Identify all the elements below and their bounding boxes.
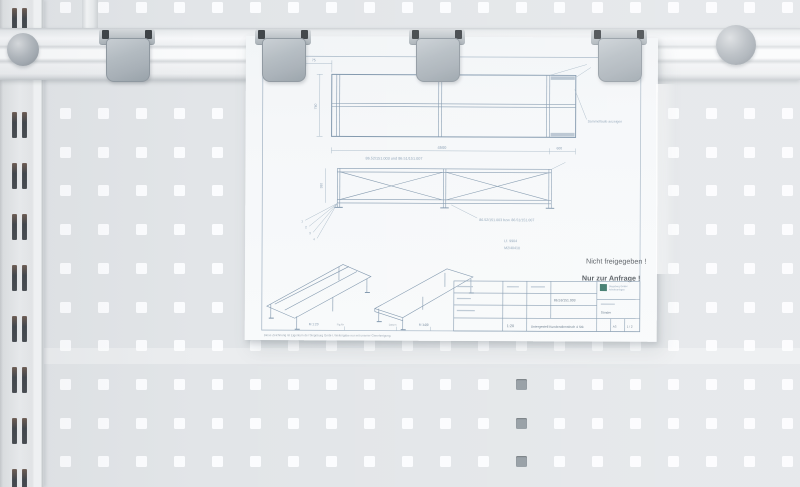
strip-label-2: Datum: [389, 323, 397, 327]
pegboard-hole: [250, 418, 261, 429]
drawing-number: 86.53/151.003: [554, 298, 576, 302]
light-seam: [0, 348, 800, 364]
pegboard-hole: [668, 379, 679, 390]
pegboard-hole: [288, 379, 299, 390]
pegboard-hole: [174, 224, 185, 235]
pegboard-hole: [782, 456, 793, 467]
pegboard-hole: [98, 185, 109, 196]
pegboard-hole: [706, 224, 717, 235]
pegboard-hole: [60, 147, 71, 158]
title-block: Siegeburg GmbH Arbeitsanlagen Sander 86.…: [454, 281, 640, 332]
pegboard-hole-dark: [516, 379, 527, 390]
upright-slot-pair: [12, 367, 32, 393]
strip-label-1: Fig.Nr: [337, 322, 344, 326]
elevation-label-bottom: 86.52/151.003 bzw. 86.51/151.007: [479, 218, 534, 222]
pegboard-hole: [668, 185, 679, 196]
upright-slot: [22, 214, 27, 240]
upright-slot: [22, 265, 27, 291]
pegboard-hole: [60, 185, 71, 196]
rail-knob-right: [716, 25, 756, 65]
pegboard-hole: [98, 456, 109, 467]
reference-numbers: Lf. 9904 M2/40410: [504, 239, 520, 250]
pegboard-hole: [212, 340, 223, 351]
pegboard-hole: [136, 302, 147, 313]
rail-clip-3: [409, 0, 465, 80]
upright-slot-pair: [12, 265, 32, 291]
pegboard-hole: [592, 418, 603, 429]
pegboard-hole: [744, 302, 755, 313]
pegboard-hole: [136, 340, 147, 351]
callout-3: 3: [309, 231, 311, 235]
pegboard-hole: [60, 108, 71, 119]
pegboard-hole: [706, 340, 717, 351]
pegboard-hole: [98, 302, 109, 313]
pegboard-hole: [744, 185, 755, 196]
pegboard-hole: [706, 185, 717, 196]
pegboard-hole: [744, 418, 755, 429]
elevation-view: 4500 600 86.52/151.003 und 86.51/151.007: [301, 144, 575, 242]
pegboard-hole: [668, 456, 679, 467]
pegboard-wall-photo: 740 75 Sammellaufe anzeigen 4500 600 86.…: [0, 0, 800, 487]
pegboard-hole: [554, 456, 565, 467]
pegboard-hole: [440, 340, 451, 351]
upright-slot: [12, 112, 17, 138]
pegboard-hole: [136, 456, 147, 467]
pegboard-hole: [60, 456, 71, 467]
pegboard-hole: [592, 340, 603, 351]
pegboard-hole: [782, 147, 793, 158]
pegboard-hole-dark: [516, 456, 527, 467]
plan-dim-depth: 740: [314, 104, 318, 110]
upright-slot: [22, 367, 27, 393]
pegboard-hole: [782, 418, 793, 429]
pegboard-hole: [478, 340, 489, 351]
pegboard-hole: [250, 456, 261, 467]
pegboard-hole: [706, 456, 717, 467]
rail-clip-4: [591, 0, 647, 80]
pegboard-hole: [554, 340, 565, 351]
pegboard-hole: [212, 108, 223, 119]
pegboard-hole: [98, 224, 109, 235]
drawing-border: [262, 56, 641, 332]
upright-slot: [22, 316, 27, 342]
plan-note: Sammellaufe anzeigen: [588, 119, 623, 123]
pegboard-hole: [440, 456, 451, 467]
pegboard-hole: [60, 2, 71, 13]
upright-slot: [12, 214, 17, 240]
upright-slot: [12, 418, 17, 444]
pegboard-hole: [706, 108, 717, 119]
elevation-dim-height: 380: [319, 183, 323, 189]
pegboard-hole: [60, 302, 71, 313]
clip-body: [598, 38, 642, 82]
callout-1: 1: [301, 219, 303, 223]
pegboard-hole: [554, 379, 565, 390]
pegboard-hole: [668, 2, 679, 13]
company-name-2: Arbeitsanlagen: [609, 288, 626, 291]
pegboard-hole: [174, 185, 185, 196]
pegboard-hole: [782, 379, 793, 390]
pegboard-hole: [326, 379, 337, 390]
pegboard-hole: [288, 340, 299, 351]
pegboard-hole: [706, 147, 717, 158]
sheet-format: A3: [613, 325, 617, 329]
pegboard-hole: [98, 379, 109, 390]
callout-4: 4: [313, 237, 315, 241]
pegboard-hole: [212, 379, 223, 390]
pegboard-hole: [706, 2, 717, 13]
upright-slot: [12, 163, 17, 189]
pegboard-hole: [668, 418, 679, 429]
pegboard-hole: [364, 379, 375, 390]
pegboard-hole: [744, 340, 755, 351]
pegboard-hole: [744, 224, 755, 235]
pegboard-hole: [402, 418, 413, 429]
pegboard-hole: [60, 418, 71, 429]
pegboard-hole: [782, 340, 793, 351]
upright-slot: [12, 367, 17, 393]
pegboard-hole: [250, 340, 261, 351]
pegboard-hole: [212, 263, 223, 274]
pegboard-hole-dark: [516, 418, 527, 429]
pegboard-hole: [782, 302, 793, 313]
pegboard-hole: [364, 418, 375, 429]
upright-slot: [22, 418, 27, 444]
pegboard-hole: [668, 147, 679, 158]
pegboard-hole: [98, 340, 109, 351]
iso-view-frame: M 1:20: [267, 264, 371, 329]
pegboard-hole: [288, 456, 299, 467]
pegboard-hole: [478, 2, 489, 13]
upright-slot-pair: [12, 112, 32, 138]
pegboard-hole: [60, 340, 71, 351]
iso-view-top: M 1:20: [375, 269, 474, 330]
pegboard-hole: [478, 456, 489, 467]
pegboard-hole: [326, 2, 337, 13]
upright-slot: [22, 163, 27, 189]
pegboard-hole: [174, 147, 185, 158]
pegboard-hole: [212, 418, 223, 429]
pegboard-hole: [212, 302, 223, 313]
pegboard-hole: [744, 2, 755, 13]
elevation-label-top: 86.52/151.003 und 86.51/151.007: [365, 157, 422, 161]
pegboard-hole: [630, 379, 641, 390]
pegboard-hole: [98, 108, 109, 119]
pegboard-hole: [668, 108, 679, 119]
pegboard-hole: [212, 224, 223, 235]
pegboard-hole: [98, 418, 109, 429]
pegboard-hole: [136, 185, 147, 196]
pegboard-hole: [668, 263, 679, 274]
pegboard-hole: [250, 379, 261, 390]
pegboard-hole: [630, 340, 641, 351]
pegboard-hole: [136, 108, 147, 119]
pegboard-hole: [706, 418, 717, 429]
company-logo-icon: [600, 284, 607, 291]
pegboard-hole: [554, 2, 565, 13]
pegboard-hole: [136, 379, 147, 390]
pegboard-hole: [706, 302, 717, 313]
upright-slot-pair: [12, 469, 32, 487]
pegboard-hole: [706, 263, 717, 274]
pegboard-hole: [212, 185, 223, 196]
pegboard-hole: [630, 418, 641, 429]
pegboard-hole: [174, 418, 185, 429]
pegboard-hole: [782, 185, 793, 196]
pegboard-hole: [744, 456, 755, 467]
pegboard-hole: [668, 340, 679, 351]
pegboard-hole: [174, 456, 185, 467]
pegboard-hole: [516, 2, 527, 13]
pegboard-hole: [326, 340, 337, 351]
pegboard-hole: [592, 456, 603, 467]
drawing-scale: 1:20: [507, 324, 514, 328]
pegboard-hole: [212, 2, 223, 13]
stamp-not-released: Nicht freigegeben !: [586, 256, 646, 265]
clip-body: [262, 38, 306, 82]
upright-slot: [22, 112, 27, 138]
pegboard-hole: [174, 2, 185, 13]
ref-line2: M2/40410: [504, 246, 520, 250]
pegboard-hole: [744, 147, 755, 158]
pegboard-hole: [402, 379, 413, 390]
plan-dim-width: 75: [312, 58, 316, 62]
pegboard-hole: [440, 379, 451, 390]
pegboard-hole: [364, 340, 375, 351]
pegboard-hole: [478, 379, 489, 390]
footer-note: Diese Zeichnung ist Eigentum der Siegebu…: [264, 333, 392, 338]
pegboard-hole: [744, 108, 755, 119]
clip-body: [416, 38, 460, 82]
upright-slot-pair: [12, 316, 32, 342]
upright-slot: [22, 469, 27, 487]
pegboard-hole: [668, 224, 679, 235]
upright-slot: [12, 316, 17, 342]
elevation-dim-total: 4500: [438, 145, 448, 150]
pegboard-hole: [706, 379, 717, 390]
pegboard-hole: [174, 379, 185, 390]
upright-slot: [12, 469, 17, 487]
pegboard-hole: [782, 224, 793, 235]
pegboard-hole: [174, 108, 185, 119]
strip-label-3: Gepr.: [423, 323, 430, 327]
pegboard-hole: [136, 418, 147, 429]
callout-2: 2: [305, 225, 307, 229]
ref-line1: Lf. 9904: [504, 239, 517, 243]
iso-scale-left: M 1:20: [309, 322, 319, 326]
pegboard-hole: [668, 302, 679, 313]
pegboard-hole: [326, 456, 337, 467]
pegboard-hole: [212, 147, 223, 158]
pegboard-hole: [402, 456, 413, 467]
drawing-title: Untergestell Kundendienstisch 4 Stk: [531, 325, 584, 329]
pegboard-hole: [326, 418, 337, 429]
pegboard-hole: [212, 456, 223, 467]
pegboard-hole: [98, 263, 109, 274]
pegboard-hole: [744, 379, 755, 390]
bottom-strip: Fig.Nr Datum Gepr.: [337, 322, 431, 330]
pegboard-hole: [136, 224, 147, 235]
pegboard-hole: [402, 340, 413, 351]
approval-stamps: Nicht freigegeben ! Nur zur Anfrage !: [582, 256, 646, 282]
clip-body: [106, 38, 150, 82]
pegboard-hole: [174, 340, 185, 351]
upright-slot-pair: [12, 163, 32, 189]
pegboard-hole: [136, 263, 147, 274]
pegboard-hole: [478, 418, 489, 429]
pegboard-hole: [364, 456, 375, 467]
pegboard-hole: [592, 379, 603, 390]
pegboard-hole: [60, 379, 71, 390]
pegboard-hole: [516, 340, 527, 351]
pegboard-hole: [136, 147, 147, 158]
pegboard-hole: [98, 147, 109, 158]
upright-slot: [12, 265, 17, 291]
pegboard-hole: [630, 456, 641, 467]
pegboard-hole: [744, 263, 755, 274]
pegboard-hole: [288, 418, 299, 429]
elevation-dim-end: 600: [557, 146, 563, 150]
rail-end-knob-left: [7, 33, 39, 66]
rail-clip-1: [99, 0, 155, 80]
pegboard-hole: [364, 2, 375, 13]
pegboard-hole: [782, 2, 793, 13]
pegboard-hole: [782, 108, 793, 119]
customer-name: Sander: [601, 311, 612, 315]
rail-mount-bracket: [82, 0, 98, 29]
pegboard-hole: [782, 263, 793, 274]
pegboard-hole: [554, 418, 565, 429]
pegboard-hole: [440, 418, 451, 429]
upright-slot-pair: [12, 418, 32, 444]
pegboard-hole: [60, 263, 71, 274]
pegboard-hole: [174, 302, 185, 313]
upright-slot-pair: [12, 214, 32, 240]
rail-clip-2: [255, 0, 311, 80]
sheet-number: 1 / 2: [627, 325, 633, 329]
pegboard-hole: [60, 224, 71, 235]
pegboard-hole: [174, 263, 185, 274]
